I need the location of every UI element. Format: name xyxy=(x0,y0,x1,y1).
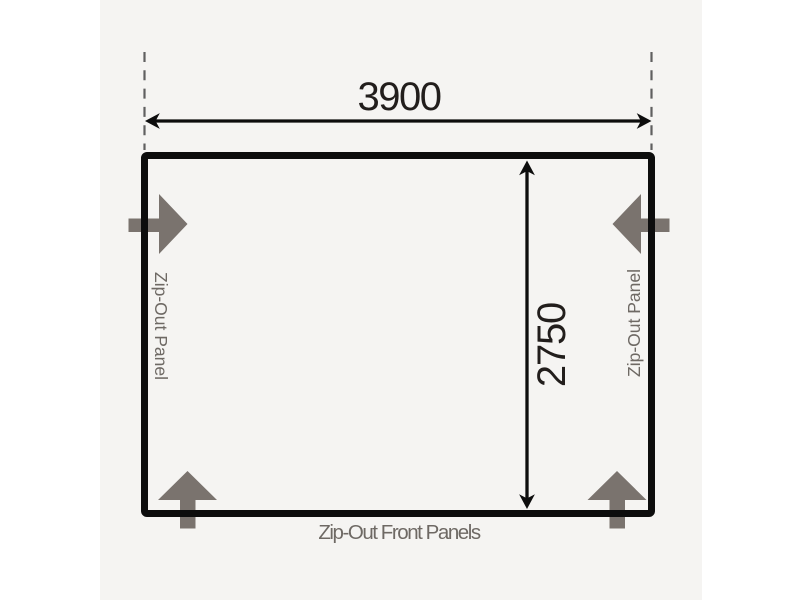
svg-text:3900: 3900 xyxy=(358,75,441,119)
svg-text:Zip-Out Front Panels: Zip-Out Front Panels xyxy=(318,521,480,544)
svg-text:Zip-Out Panel: Zip-Out Panel xyxy=(624,269,644,377)
svg-text:Zip-Out Panel: Zip-Out Panel xyxy=(151,272,171,380)
svg-text:2750: 2750 xyxy=(530,303,574,387)
